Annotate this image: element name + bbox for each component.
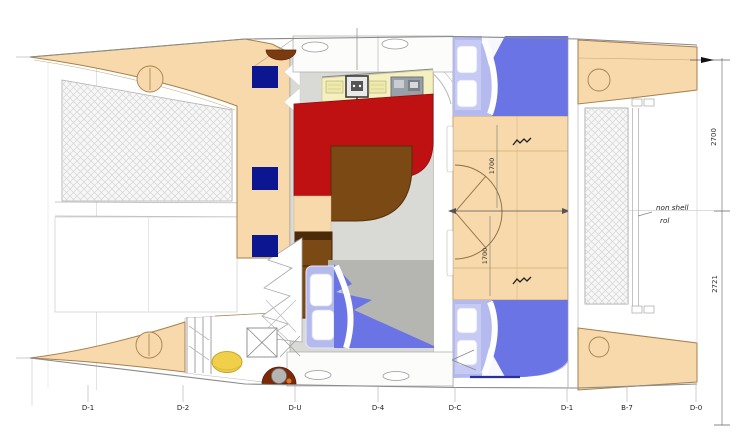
window-hatch-icon xyxy=(252,167,278,190)
salon-floor-strip xyxy=(294,196,331,232)
station-label: D-1 xyxy=(561,404,573,412)
pillow-icon xyxy=(457,340,477,365)
station-labels: D-1 D-2 D-U D-4 D-C D-1 B-7 D-0 xyxy=(82,385,702,412)
station-label: B-7 xyxy=(621,404,633,412)
station-label: D-1 xyxy=(82,404,94,412)
cabin-door-leaf xyxy=(447,230,453,276)
galley-locker-icon xyxy=(326,81,343,93)
dimension-right-lower: 2721 xyxy=(711,275,719,293)
catamaran-floorplan-sheet: 1700 1700 xyxy=(0,0,750,432)
locker-handle-icon xyxy=(382,39,408,49)
dimension-arrow-icon xyxy=(701,57,714,63)
cabin-door-leaf xyxy=(447,126,453,172)
locker-handle-icon xyxy=(305,371,331,380)
dimension-right-upper: 2700 xyxy=(710,128,718,146)
pillow-icon xyxy=(310,274,332,306)
transom-deck-upper xyxy=(578,40,697,104)
dimension-cabin-aft: 1700 xyxy=(481,248,489,265)
aft-deck xyxy=(568,36,697,390)
winch-icon xyxy=(272,369,287,384)
station-label: D-C xyxy=(449,404,462,412)
pillow-icon xyxy=(457,46,477,73)
pillow-icon xyxy=(457,308,477,333)
station-label: D-U xyxy=(288,404,301,412)
window-hatch-icon xyxy=(252,66,278,88)
aft-cockpit-band xyxy=(287,350,476,386)
fender-icon xyxy=(212,352,242,373)
note-line2: rol xyxy=(660,216,669,225)
locker-handle-icon xyxy=(383,372,409,381)
station-label: D-4 xyxy=(372,404,385,412)
note-line1: non shell xyxy=(656,203,689,212)
starboard-aft-berth xyxy=(453,300,568,378)
pillow-icon xyxy=(312,310,334,340)
pillow-icon xyxy=(457,80,477,107)
annotation-note: non shell rol xyxy=(638,203,689,225)
floorplan-drawing: 1700 1700 xyxy=(0,0,750,432)
salon-hull-wall xyxy=(434,40,453,385)
locker-handle-icon xyxy=(302,42,328,52)
dimension-cabin-fore: 1700 xyxy=(488,158,496,175)
starboard-hull: 1700 1700 xyxy=(447,116,570,300)
station-label: D-0 xyxy=(690,404,702,412)
station-label: D-2 xyxy=(177,404,189,412)
galley-locker-icon xyxy=(369,81,386,93)
window-hatch-icon xyxy=(252,235,278,257)
forward-deck-panel xyxy=(55,217,237,312)
starboard-fore-berth xyxy=(453,36,568,116)
center-berth xyxy=(306,260,434,348)
